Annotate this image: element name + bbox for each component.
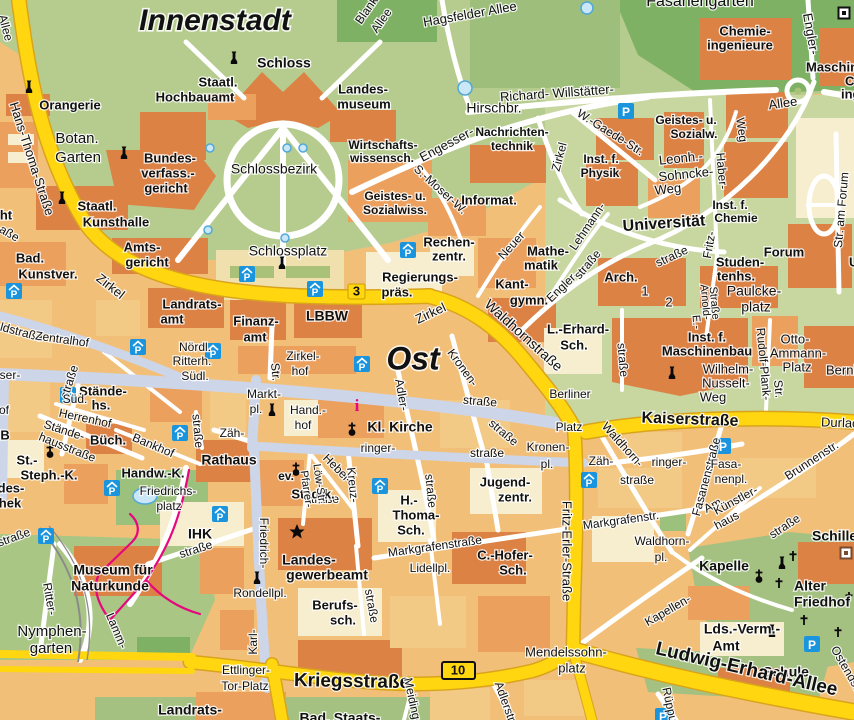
svg-text:P: P xyxy=(312,288,319,299)
map-label: Landes- xyxy=(282,552,336,568)
pond xyxy=(299,144,307,152)
svg-text:P: P xyxy=(217,513,224,524)
map-label: präs. xyxy=(381,284,412,299)
map-label: Museum für xyxy=(73,562,153,578)
map-label: Weg xyxy=(700,389,727,404)
svg-text:3: 3 xyxy=(353,283,360,298)
map-label: Friedrichs- xyxy=(140,484,197,498)
map-label: Chemie xyxy=(714,211,758,225)
map-label: Str. xyxy=(268,362,284,381)
map-label: Schillersch. xyxy=(812,528,854,544)
map-label: Weg xyxy=(654,180,682,198)
karlsruhe-city-map: PPPPPPPPPPPPPPPPPPi 310 InnenstadtOstAll… xyxy=(0,0,854,720)
map-label: Kapelle xyxy=(699,558,749,574)
map-label: of xyxy=(0,403,10,417)
map-label: Orangerie xyxy=(39,97,100,112)
map-label: Wirtschafts- xyxy=(348,138,417,152)
map-label: des- xyxy=(0,480,24,495)
map-label: Str. xyxy=(771,379,787,398)
map-label: Rathaus xyxy=(201,452,256,468)
map-label: Büch. xyxy=(90,432,126,447)
parking-icon: P xyxy=(307,281,323,299)
map-label: sch. xyxy=(330,612,356,627)
pond xyxy=(204,226,212,234)
info-icon: i xyxy=(355,396,360,415)
map-label: straße xyxy=(189,413,206,448)
map-label: wissensch. xyxy=(349,151,414,165)
parking-icon: P xyxy=(618,103,634,119)
map-label: Studen- xyxy=(716,254,764,269)
map-label: Zirkel- xyxy=(286,349,319,363)
svg-text:P: P xyxy=(43,535,50,546)
map-label: museum xyxy=(337,96,390,111)
pond xyxy=(458,81,472,95)
map-label: Maschinenb. xyxy=(806,59,854,74)
map-label: Süd. xyxy=(63,392,88,406)
map-label: Bad. xyxy=(16,250,44,265)
map-label: Innenstadt xyxy=(139,4,293,37)
map-label: ev. xyxy=(278,469,294,483)
map-label: pl. xyxy=(250,402,263,416)
map-label: St.- xyxy=(17,452,38,467)
map-label: Inst. f. xyxy=(583,152,618,166)
parking-icon: P xyxy=(354,356,370,374)
parking-icon: P xyxy=(400,242,416,260)
pond xyxy=(283,144,291,152)
pond xyxy=(281,234,289,242)
map-label: Botan. xyxy=(55,130,98,147)
svg-text:P: P xyxy=(135,346,142,357)
map-label: Mendelssohn- xyxy=(525,644,607,659)
map-label: IHK xyxy=(188,526,212,542)
map-canvas: PPPPPPPPPPPPPPPPPPi 310 InnenstadtOstAll… xyxy=(0,0,854,720)
map-label: Schlossbezirk xyxy=(231,161,318,177)
svg-text:P: P xyxy=(11,290,18,301)
svg-text:P: P xyxy=(359,363,366,374)
map-label: 2 xyxy=(665,294,672,309)
map-label: Kl. Kirche xyxy=(367,419,433,435)
map-label: gewerbeamt xyxy=(286,567,368,583)
map-label: Paulcke- xyxy=(727,283,782,299)
map-label: Garten xyxy=(55,149,101,166)
parking-icon: P xyxy=(372,478,388,496)
map-label: gymn. xyxy=(510,292,548,307)
pond xyxy=(206,144,214,152)
map-label: Alter xyxy=(794,578,826,594)
map-label: Informat. xyxy=(461,192,517,207)
map-label: hof xyxy=(292,364,309,378)
parking-icon: P xyxy=(6,283,22,301)
svg-text:P: P xyxy=(808,638,816,652)
map-label: Inst. f. xyxy=(712,198,747,212)
map-label: B xyxy=(0,427,9,442)
map-label: H.- xyxy=(400,492,417,507)
map-label: Ammann- xyxy=(770,345,826,360)
map-label: Geistes- u. xyxy=(655,113,716,127)
map-label: Platz xyxy=(783,359,812,374)
map-label: platz xyxy=(741,299,771,315)
parking-icon: P xyxy=(104,480,120,498)
map-label: ser- xyxy=(0,368,20,382)
map-label: Berliner xyxy=(549,387,590,401)
svg-text:P: P xyxy=(377,485,384,496)
map-label: Ost xyxy=(386,340,441,376)
map-label: Handw.-K. xyxy=(121,465,184,480)
map-label: pl. xyxy=(541,457,554,471)
map-label: Südl. xyxy=(181,369,208,383)
parking-icon: P xyxy=(130,339,146,357)
map-label: matik xyxy=(524,257,559,272)
map-label: Kunstver. xyxy=(18,266,77,281)
map-label: Lds.-Verm.- xyxy=(704,621,781,637)
map-label: pl. xyxy=(655,550,668,564)
map-label: Hand.- xyxy=(290,403,326,417)
map-label: Lidellpl. xyxy=(410,561,451,575)
map-label: Otto- xyxy=(781,331,810,346)
map-label: Maschinenbau xyxy=(662,343,752,358)
parking-icon: P xyxy=(212,506,228,524)
map-label: Sozialw. xyxy=(671,127,718,141)
map-label: hek xyxy=(0,495,22,510)
map-label: ht xyxy=(0,207,13,222)
map-label: Ritterh. xyxy=(173,354,212,368)
map-label: hof xyxy=(295,418,312,432)
map-label: Sch. xyxy=(397,522,424,537)
map-label: Rondellpl. xyxy=(233,586,286,600)
map-label: Kronen- xyxy=(527,440,570,454)
svg-text:P: P xyxy=(109,487,116,498)
map-label: Friedhof xyxy=(794,594,850,610)
map-label: hs. xyxy=(92,397,111,412)
map-label: C.-Hofer- xyxy=(477,547,533,562)
map-label: amt xyxy=(160,311,184,326)
map-label: Forum xyxy=(764,244,804,259)
map-label: verfass.- xyxy=(141,165,194,180)
map-label: Arch. xyxy=(604,269,637,284)
map-label: Bundes- xyxy=(144,150,196,165)
parking-icon: P xyxy=(38,528,54,546)
map-symbol-square-icon xyxy=(841,548,852,559)
map-label: 1 xyxy=(641,283,648,298)
map-label: LBBW xyxy=(306,308,349,324)
map-label: Berufs- xyxy=(312,597,358,612)
map-label: Physik xyxy=(581,166,620,180)
map-label: Finanz- xyxy=(233,313,279,328)
map-label: Bad. Staats- xyxy=(300,710,381,720)
map-label: garten xyxy=(30,640,73,657)
map-label: Nymphen- xyxy=(17,623,86,640)
svg-text:P: P xyxy=(622,105,630,119)
map-label: Kunsthalle xyxy=(83,214,149,229)
map-label: straße xyxy=(620,473,654,487)
map-label: Ettlinger- xyxy=(222,663,270,677)
parking-icon: P xyxy=(172,425,188,443)
map-label: Waldhorn- xyxy=(635,534,690,548)
svg-text:P: P xyxy=(177,432,184,443)
map-label: ringer- xyxy=(361,441,396,455)
map-label: platz xyxy=(156,499,181,513)
svg-text:P: P xyxy=(405,249,412,260)
parking-icon: P xyxy=(804,636,820,652)
map-label: ringer- xyxy=(652,455,687,469)
map-label: straße xyxy=(470,446,504,460)
map-label: gericht xyxy=(144,180,188,195)
map-label: Kaiserstraße xyxy=(641,410,739,430)
map-label: Regierungs- xyxy=(382,269,458,284)
map-label: platz xyxy=(558,660,585,675)
map-label: Staatl. xyxy=(198,74,237,89)
map-label: U xyxy=(849,254,854,269)
map-label: Markt- xyxy=(247,387,281,401)
map-label: ingenieure xyxy=(707,37,773,52)
map-label: Thoma- xyxy=(393,507,440,522)
map-label: Schloss xyxy=(257,55,311,71)
map-label: Zäh- xyxy=(220,426,245,440)
map-label: Nachrichten- xyxy=(475,125,548,139)
map-label: Platz xyxy=(556,420,583,434)
map-label: Landrats- xyxy=(162,296,221,311)
parking-icon: P xyxy=(581,472,597,490)
map-label: nenpl. xyxy=(715,472,748,486)
map-label: Kriegsstraße xyxy=(294,670,411,693)
map-label: Sch. xyxy=(560,337,587,352)
map-label: zentr. xyxy=(498,489,532,504)
map-label: gericht xyxy=(125,254,169,269)
pond xyxy=(581,2,593,14)
map-label: Inst. f. xyxy=(688,329,726,344)
map-label: amt xyxy=(243,329,267,344)
map-label: Friedrich- xyxy=(257,518,271,569)
map-label: Fritz-Erler-Straße xyxy=(560,501,575,601)
map-label: Mathe- xyxy=(527,243,569,258)
route-badge: 10 xyxy=(442,662,475,679)
map-label: Kant- xyxy=(495,276,528,291)
map-label: Sch. xyxy=(499,562,526,577)
map-label: technik xyxy=(491,139,533,153)
svg-text:P: P xyxy=(586,479,593,490)
map-label: Landes- xyxy=(338,81,388,96)
map-label: straße xyxy=(614,342,631,377)
map-symbol-square-icon xyxy=(839,8,850,19)
map-label: Schlossplatz xyxy=(249,243,328,259)
map-label: Rechen- xyxy=(423,234,474,249)
route-badge: 3 xyxy=(348,283,365,299)
map-label: Jugend- xyxy=(480,474,531,489)
map-label: straße xyxy=(463,393,498,410)
map-label: tenhs. xyxy=(717,268,755,283)
map-label: Geistes- u. xyxy=(364,189,425,203)
map-label: Chemie- xyxy=(719,23,770,38)
map-label: Landrats- xyxy=(158,702,222,718)
map-label: ingenieure xyxy=(841,86,854,101)
map-label: Steph.-K. xyxy=(20,467,77,482)
map-label: Fasa- xyxy=(711,457,742,471)
map-label: Hochbauamt xyxy=(156,89,235,104)
map-label: Wilhelm- xyxy=(703,361,754,376)
map-label: Tor-Platz xyxy=(221,679,268,693)
map-label: Zäh- xyxy=(589,454,614,468)
map-label: Staatl. xyxy=(77,198,116,213)
svg-text:P: P xyxy=(244,273,251,284)
map-label: Hirschbr. xyxy=(466,100,521,116)
map-label: Sozialwiss. xyxy=(363,203,427,217)
map-label: L.-Erhard- xyxy=(547,321,609,336)
map-label: Nusselt- xyxy=(702,375,750,390)
map-label: Amts- xyxy=(124,239,161,254)
map-label: Karl- xyxy=(246,629,260,654)
svg-text:10: 10 xyxy=(451,662,465,677)
map-label: zentr. xyxy=(432,248,466,263)
map-label: Naturkunde xyxy=(71,578,149,594)
map-label: Bernhardstr. xyxy=(826,362,854,377)
map-label: Fasanengarten xyxy=(646,0,754,10)
parking-icon: P xyxy=(239,266,255,284)
map-label: Nördl. xyxy=(179,340,211,354)
